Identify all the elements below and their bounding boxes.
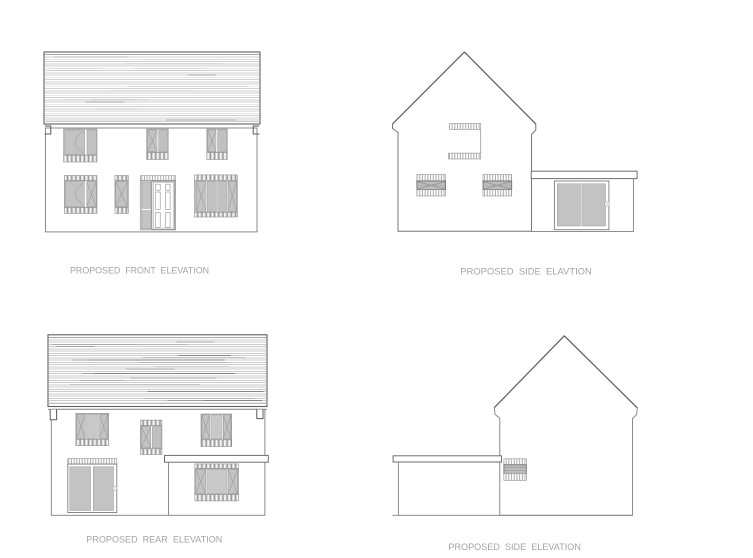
svg-text:PROPOSED SIDE ELEVATION: PROPOSED SIDE ELEVATION [448,542,581,552]
svg-text:PROPOSED FRONT ELEVATION: PROPOSED FRONT ELEVATION [70,266,209,276]
svg-text:PROPOSED SIDE ELAVTION: PROPOSED SIDE ELAVTION [460,266,592,276]
svg-text:PROPOSED REAR ELEVATION: PROPOSED REAR ELEVATION [86,534,222,544]
